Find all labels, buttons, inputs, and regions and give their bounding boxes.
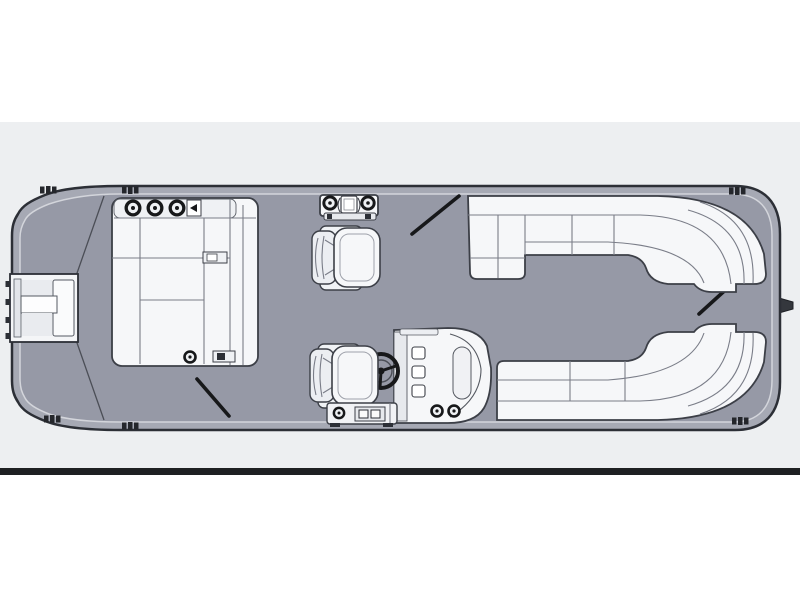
companion-chair [312, 226, 380, 290]
cupholder-icon [333, 407, 346, 420]
cupholder-icon [322, 195, 337, 210]
bow-lounge [112, 198, 258, 366]
cupholder-icon [147, 200, 164, 217]
helm-step-platform [327, 403, 397, 427]
cocktail-table [320, 195, 378, 220]
cupholder-icon [430, 404, 444, 418]
cupholder-icon [360, 195, 375, 210]
cupholder-icon [447, 404, 461, 418]
mooring-cleat-icon [44, 415, 61, 423]
mooring-cleat-icon [729, 187, 746, 195]
mooring-cleat-icon [40, 186, 57, 194]
divider-bar [0, 468, 800, 475]
cupholder-icon [183, 350, 197, 364]
mooring-cleat-icon [122, 186, 139, 194]
windshield [453, 347, 471, 399]
cupholder-icon [169, 200, 186, 217]
gauges [412, 347, 425, 397]
bow-gate-step [21, 296, 57, 313]
bow-boarding-gate [6, 274, 79, 342]
cupholder-icon [125, 200, 142, 217]
pontoon-floorplan-image [0, 0, 800, 600]
mooring-cleat-icon [732, 417, 749, 425]
helm-console [394, 328, 491, 423]
mooring-cleat-icon [122, 422, 139, 430]
helm-chair [310, 344, 378, 408]
